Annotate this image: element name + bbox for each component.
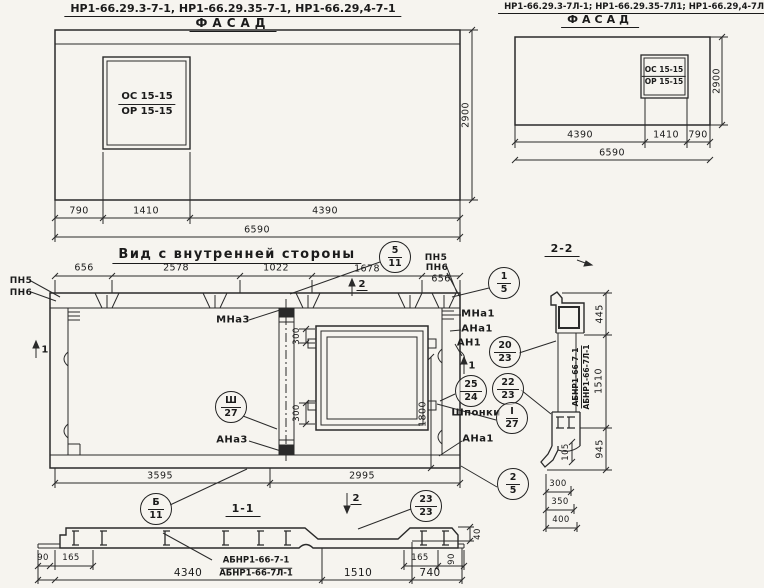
facade-right-view-label: Фасад (561, 13, 639, 28)
callout-bottom: 5 (501, 285, 508, 295)
callout-III-27: Ш 27 (215, 391, 247, 423)
dim-2900: 2900 (461, 102, 472, 128)
callout-bottom: 5 (510, 486, 517, 496)
opening-mark-top: ОС 15-15 (118, 91, 175, 105)
dim-300: 300 (549, 479, 566, 489)
dim-740: 740 (419, 567, 440, 579)
callout-top: 22 (497, 378, 518, 390)
dim-4340: 4340 (174, 567, 202, 579)
callout-bottom: 27 (505, 420, 518, 430)
engineering-drawing-sheet: НР1-66.29.3-7-1, НР1-66.29.35-7-1, НР1-6… (0, 0, 764, 588)
dim-350: 350 (551, 497, 568, 507)
opening-mark-top: ОС 15-15 (642, 66, 686, 77)
callout-top: 2 (506, 473, 521, 485)
label-an1: АН1 (457, 338, 481, 349)
section-marker-2-top: 2 (357, 279, 368, 291)
section-marker-1-left: 1 (41, 345, 48, 356)
section-marker-2-bottom: 2 (351, 493, 362, 505)
section-1-1-title: 1-1 (226, 502, 261, 517)
callout-bottom: 27 (224, 409, 237, 419)
dim-945: 945 (595, 439, 606, 458)
callout-top: I (506, 407, 518, 419)
beam-mark-bottom: АБНР1-66-7Л-1 (219, 570, 293, 580)
opening-mark-bottom: ОР 15-15 (645, 78, 683, 87)
facade-left-view-label: Фасад (190, 16, 277, 32)
dim-165-right: 165 (411, 553, 428, 563)
callout-23-23: 23 23 (410, 490, 442, 522)
dim-790: 790 (688, 130, 707, 141)
section-marker-1-right: 1 (468, 361, 475, 372)
section-2-2-title: 2-2 (545, 242, 580, 257)
label-pn6-right: ПН6 (426, 263, 449, 273)
dim-1510: 1510 (594, 368, 605, 394)
facade-left-linework (52, 27, 478, 242)
dim-1678: 1678 (354, 264, 380, 275)
label-ana1-bottom: АНа1 (462, 434, 493, 445)
dim-1800: 1800 (418, 401, 429, 427)
dim-40: 40 (473, 528, 483, 540)
facade-right-linework (512, 34, 728, 163)
dim-90-left: 90 (37, 553, 49, 563)
beam-mark-bottom: АБНР1-66-7Л-1 (582, 345, 591, 410)
dim-1410: 1410 (653, 130, 679, 141)
callout-B-11: Б 11 (140, 493, 172, 525)
callout-1-5: 1 5 (488, 267, 520, 299)
dim-165-left: 165 (62, 553, 79, 563)
dim-400: 400 (552, 515, 569, 525)
callout-bottom: 11 (149, 511, 162, 521)
section-1-1-beam-mark: АБНР1-66-7-1 АБНР1-66-7Л-1 (219, 557, 293, 580)
dim-6590: 6590 (599, 148, 625, 159)
callout-top: 5 (388, 246, 403, 258)
dim-2995: 2995 (349, 471, 375, 482)
dim-105: 105 (561, 443, 571, 460)
facade-left-opening-mark: ОС 15-15 ОР 15-15 (118, 91, 175, 117)
drawing-linework (0, 0, 764, 588)
callout-top: Б (148, 498, 163, 510)
dim-2578: 2578 (163, 263, 189, 274)
dim-790: 790 (69, 206, 88, 217)
label-pn5-left: ПН5 (10, 276, 33, 286)
callout-top: 20 (494, 341, 515, 353)
dim-1510: 1510 (344, 567, 372, 579)
dim-656-2: 656 (431, 274, 450, 285)
callout-5-11: 5 11 (379, 241, 411, 273)
opening-mark-bottom: ОР 15-15 (121, 106, 172, 118)
callout-25-24: 25 24 (455, 375, 487, 407)
facade-left-title: НР1-66.29.3-7-1, НР1-66.29.35-7-1, НР1-6… (64, 2, 401, 17)
callout-top: 25 (460, 380, 481, 392)
callout-top: 23 (415, 495, 436, 507)
label-pn5-right: ПН5 (425, 253, 448, 263)
callout-22-23: 22 23 (492, 373, 524, 405)
dim-3595: 3595 (147, 471, 173, 482)
callout-bottom: 24 (464, 393, 477, 403)
facade-right-opening-mark: ОС 15-15 ОР 15-15 (642, 66, 686, 86)
dim-656-1: 656 (74, 263, 93, 274)
callout-20-23: 20 23 (489, 336, 521, 368)
callout-2-5: 2 5 (497, 468, 529, 500)
label-pn6-left: ПН6 (10, 288, 33, 298)
callout-bottom: 23 (501, 391, 514, 401)
label-ana1: АНа1 (461, 324, 492, 335)
callout-bottom: 11 (388, 259, 401, 269)
callout-bottom: 23 (498, 354, 511, 364)
label-shponki: Шпонки (451, 408, 500, 419)
beam-mark-top: АБНР1-66-7-1 (220, 557, 293, 569)
dim-4390: 4390 (312, 206, 338, 217)
dim-90-right: 90 (447, 553, 457, 565)
label-ana3: АНа3 (216, 435, 247, 446)
dim-1410: 1410 (133, 206, 159, 217)
callout-bottom: 23 (419, 508, 432, 518)
dim-4390: 4390 (567, 130, 593, 141)
inner-view-title: Вид с внутренней стороны (112, 247, 361, 264)
section-2-2-beam-mark: АБНР1-66-7-1 АБНР1-66-7Л-1 (571, 345, 591, 410)
callout-top: Ш (221, 396, 241, 408)
dim-6590: 6590 (244, 225, 270, 236)
dim-1022: 1022 (263, 263, 289, 274)
dim-300-bottom: 300 (292, 404, 302, 421)
beam-mark-top: АБНР1-66-7-1 (571, 346, 582, 409)
dim-300-top: 300 (292, 327, 302, 344)
label-mna1: МНа1 (461, 309, 495, 320)
dim-2900: 2900 (712, 68, 723, 94)
callout-I-27: I 27 (496, 402, 528, 434)
label-mna3: МНа3 (216, 315, 250, 326)
callout-top: 1 (497, 272, 512, 284)
dim-445: 445 (595, 304, 606, 323)
